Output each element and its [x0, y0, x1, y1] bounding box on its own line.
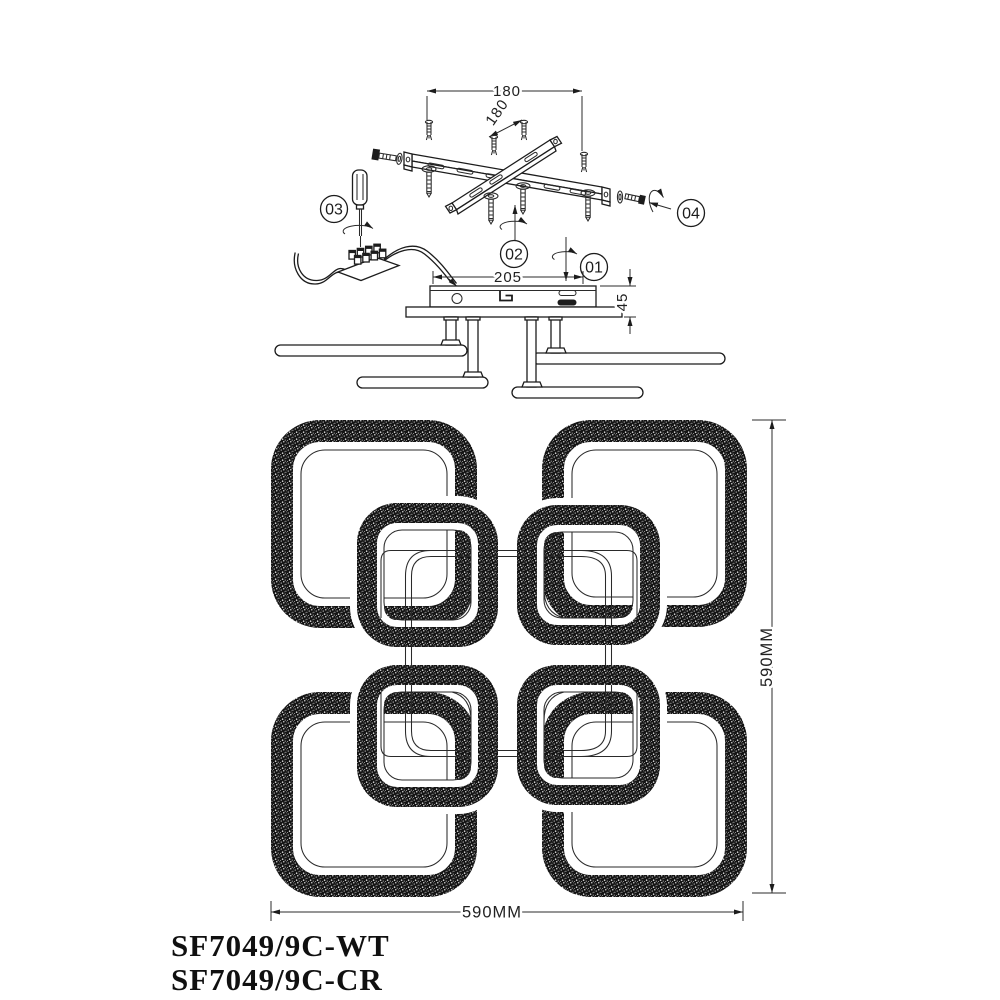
side-screw-left — [371, 149, 403, 165]
fixture-top-view: 590MM 590MM — [271, 420, 786, 922]
rotate-arrow-icon — [343, 225, 373, 234]
callout-step1: 01 — [552, 237, 607, 281]
callout-3-label: 03 — [325, 202, 343, 219]
dimension-canopy-length: 205 — [433, 269, 583, 286]
callout-4-label: 04 — [682, 206, 700, 223]
mounting-assembly-view: 180 180 — [275, 83, 725, 398]
dim-height-label: 590MM — [758, 627, 776, 687]
screw-icon — [484, 193, 498, 224]
side-screw-right — [617, 190, 671, 212]
callout-step4: 04 — [678, 200, 705, 227]
anchor-icon — [580, 152, 587, 172]
rotate-arrow-icon — [500, 221, 527, 229]
arm-bar — [512, 387, 643, 398]
callout-2-label: 02 — [505, 247, 523, 264]
small-ring-halos — [367, 513, 650, 797]
support-post — [527, 317, 536, 387]
canopy-side-view — [406, 286, 622, 317]
anchor-icon — [490, 135, 497, 155]
dim-width-label: 590MM — [462, 904, 522, 922]
technical-drawing-page: 180 180 — [0, 0, 1000, 1000]
terminal-block — [338, 244, 399, 280]
ceiling-lamp-drawing: 180 180 — [0, 0, 1000, 1000]
anchor-icon — [520, 120, 527, 140]
anchor-icon — [425, 120, 432, 140]
arm-bar — [532, 353, 725, 364]
callout-step3: 03 — [321, 196, 348, 223]
product-code-white: SF7049/9C-WT — [171, 928, 390, 963]
dimension-mount-spacing-diagonal: 180 — [482, 96, 522, 137]
dim-45-label: 45 — [614, 293, 631, 312]
canopy-slot-filled — [558, 300, 577, 306]
dim-205-label: 205 — [494, 269, 522, 286]
large-square-rings — [282, 431, 736, 886]
rotate-arrow-icon — [552, 252, 577, 260]
dimension-fixture-width: 590MM — [271, 901, 743, 922]
arm-bar — [357, 377, 488, 388]
fixture-arms-side-view — [275, 317, 725, 398]
callout-1-label: 01 — [585, 260, 603, 277]
dim-180-diagonal-label: 180 — [482, 96, 512, 129]
dimension-fixture-height: 590MM — [752, 420, 786, 893]
support-post — [468, 317, 478, 377]
product-code-chrome: SF7049/9C-CR — [171, 962, 383, 997]
arm-bar — [275, 345, 467, 356]
small-square-rings — [367, 513, 650, 797]
dimension-canopy-height: 45 — [600, 269, 636, 334]
product-codes: SF7049/9C-WT SF7049/9C-CR — [171, 928, 390, 997]
